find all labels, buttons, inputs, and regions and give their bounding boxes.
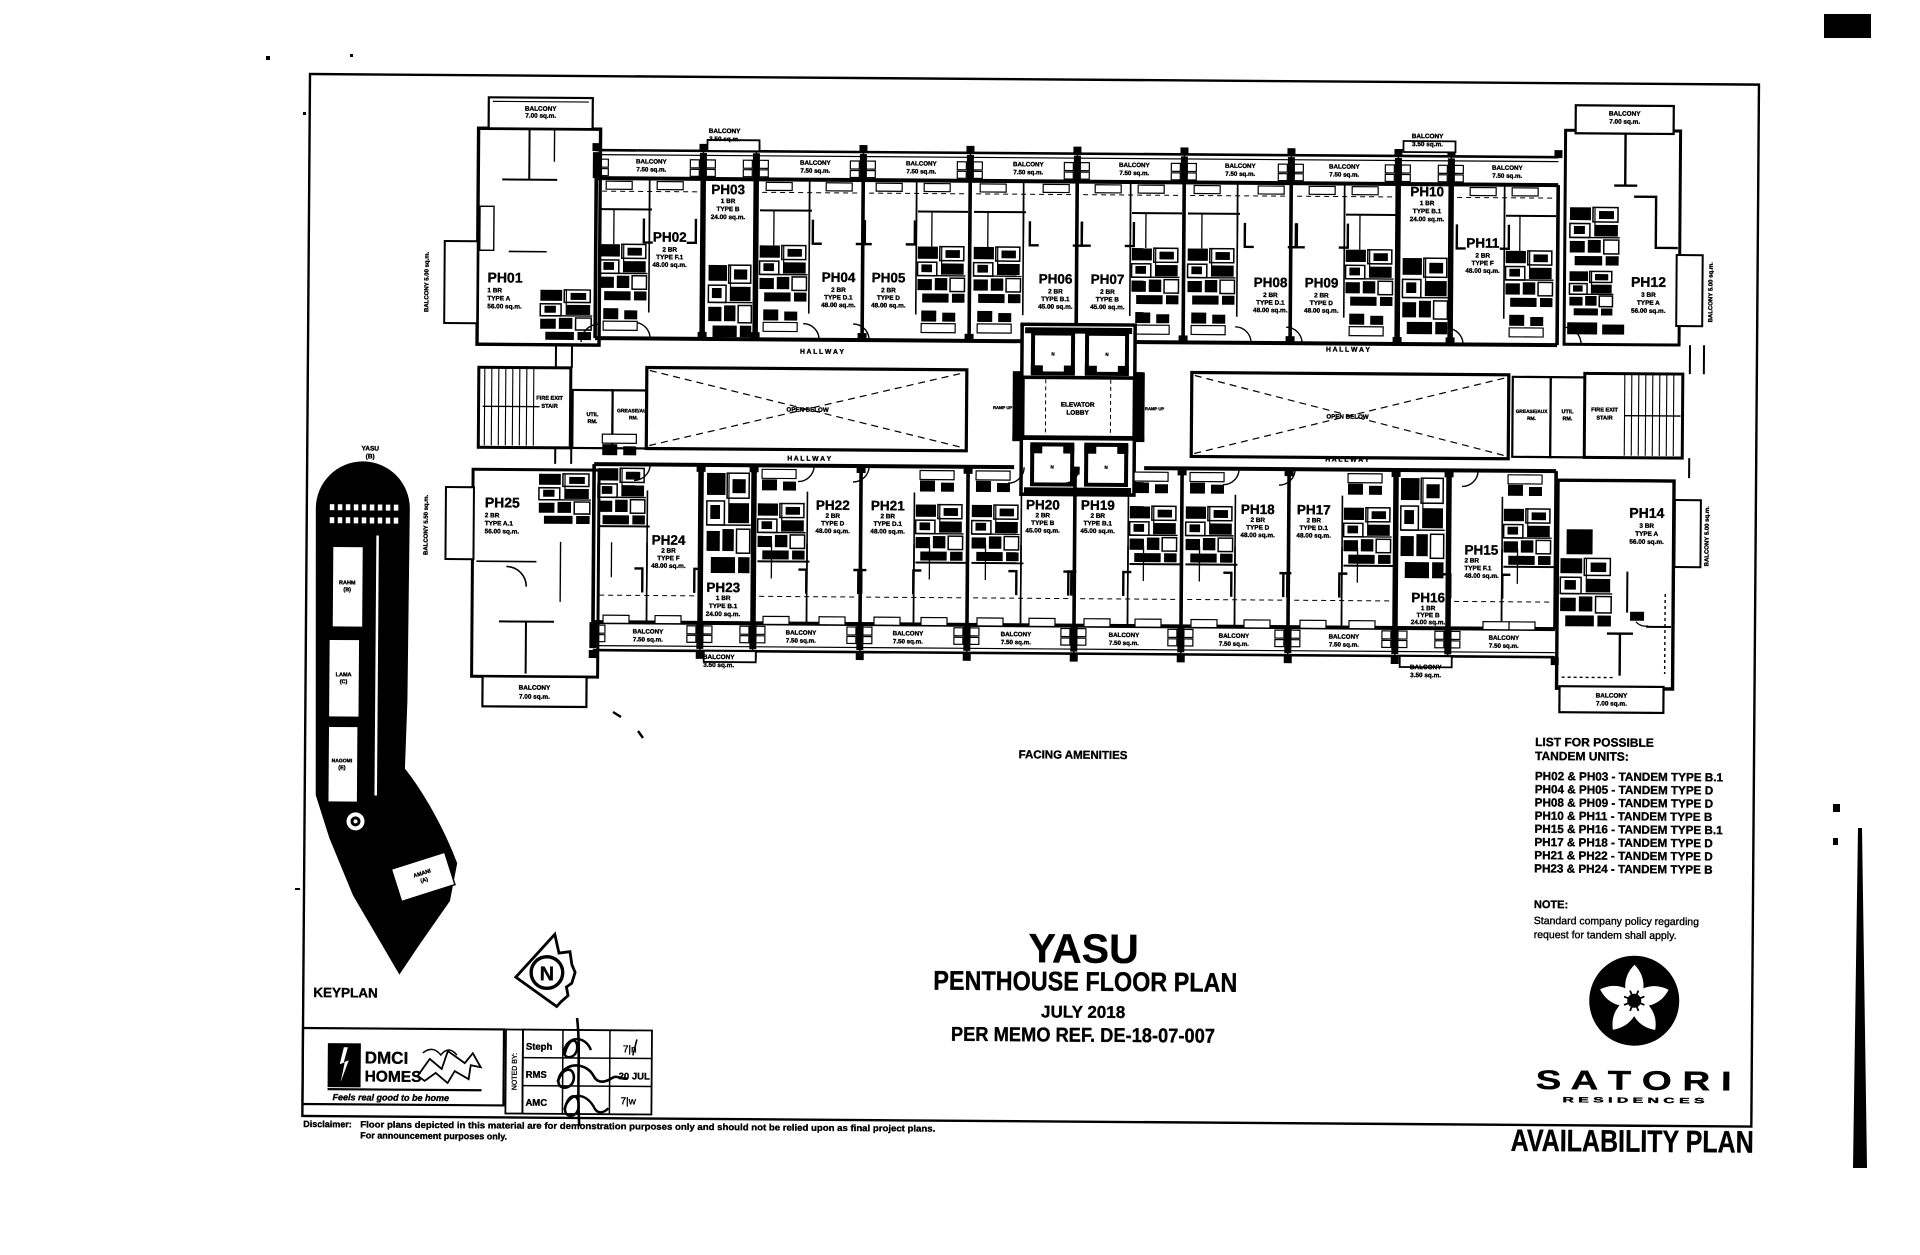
- svg-text:45.00 sq.m.: 45.00 sq.m.: [1080, 528, 1115, 535]
- svg-text:PH23 & PH24 - TANDEM TYPE B: PH23 & PH24 - TANDEM TYPE B: [1534, 862, 1712, 876]
- svg-text:3 BR: 3 BR: [1639, 523, 1654, 530]
- svg-text:TYPE A: TYPE A: [1635, 531, 1658, 538]
- svg-text:R E S I D E N C E S: R E S I D E N C E S: [1562, 1095, 1704, 1105]
- svg-text:TYPE F: TYPE F: [1471, 260, 1494, 267]
- svg-text:BALCONY 5.00 sq.m.: BALCONY 5.00 sq.m.: [424, 251, 430, 312]
- svg-text:7.50 sq.m.: 7.50 sq.m.: [1329, 641, 1359, 648]
- svg-text:7.00 sq.m.: 7.00 sq.m.: [519, 694, 550, 701]
- svg-text:BALCONY: BALCONY: [636, 158, 668, 165]
- svg-text:RAHM: RAHM: [339, 580, 356, 586]
- svg-text:PH02 & PH03 - TANDEM TYPE B.1: PH02 & PH03 - TANDEM TYPE B.1: [1535, 770, 1724, 784]
- svg-text:BALCONY: BALCONY: [1119, 162, 1151, 169]
- svg-text:1 BR: 1 BR: [1420, 200, 1435, 207]
- svg-text:PH04: PH04: [822, 270, 856, 285]
- svg-text:2 BR: 2 BR: [661, 548, 676, 555]
- svg-text:PH15 & PH16 - TANDEM TYPE B.1: PH15 & PH16 - TANDEM TYPE B.1: [1534, 823, 1723, 837]
- svg-text:PH03: PH03: [711, 182, 745, 197]
- svg-text:BALCONY: BALCONY: [703, 654, 735, 661]
- svg-text:7.50 sq.m.: 7.50 sq.m.: [1013, 169, 1043, 176]
- svg-text:2 BR: 2 BR: [1475, 253, 1490, 260]
- svg-text:PH04 & PH05 - TANDEM TYPE D: PH04 & PH05 - TANDEM TYPE D: [1535, 783, 1713, 797]
- svg-text:2 BR: 2 BR: [1100, 289, 1115, 296]
- svg-text:BALCONY: BALCONY: [1596, 692, 1628, 699]
- svg-text:OPEN BELOW: OPEN BELOW: [786, 407, 828, 414]
- svg-text:(C): (C): [340, 679, 348, 685]
- svg-text:PH17 & PH18 - TANDEM TYPE D: PH17 & PH18 - TANDEM TYPE D: [1534, 836, 1712, 850]
- svg-text:Steph: Steph: [526, 1042, 553, 1053]
- svg-text:7.50 sq.m.: 7.50 sq.m.: [636, 166, 666, 173]
- svg-text:BALCONY: BALCONY: [1109, 632, 1141, 639]
- svg-text:OPEN BELOW: OPEN BELOW: [1326, 413, 1368, 420]
- svg-text:2 BR: 2 BR: [1035, 512, 1050, 519]
- svg-text:TYPE F: TYPE F: [657, 555, 680, 562]
- svg-text:RM.: RM.: [1563, 416, 1573, 422]
- svg-text:PENTHOUSE FLOOR PLAN: PENTHOUSE FLOOR PLAN: [933, 966, 1237, 998]
- svg-text:7.00 sq.m.: 7.00 sq.m.: [1609, 119, 1640, 126]
- svg-text:YASU: YASU: [361, 445, 379, 452]
- svg-text:56.00 sq.m.: 56.00 sq.m.: [1631, 308, 1666, 315]
- svg-text:7.50 sq.m.: 7.50 sq.m.: [800, 168, 830, 175]
- svg-text:24.00 sq.m.: 24.00 sq.m.: [711, 214, 746, 221]
- svg-text:AMC: AMC: [525, 1098, 547, 1109]
- svg-text:N: N: [1105, 352, 1108, 357]
- svg-text:PH22: PH22: [816, 498, 850, 513]
- svg-text:RM.: RM.: [629, 415, 639, 421]
- svg-text:7.50 sq.m.: 7.50 sq.m.: [893, 638, 923, 645]
- svg-text:BALCONY 5.00 sq.m.: BALCONY 5.00 sq.m.: [1704, 506, 1710, 567]
- svg-text:BALCONY: BALCONY: [1013, 161, 1045, 168]
- svg-text:PH24: PH24: [652, 533, 686, 548]
- svg-text:BALCONY: BALCONY: [1489, 635, 1521, 642]
- svg-text:PH17: PH17: [1297, 502, 1331, 517]
- svg-text:TYPE B.1: TYPE B.1: [709, 603, 738, 610]
- svg-text:BALCONY: BALCONY: [709, 128, 741, 135]
- svg-text:PH14: PH14: [1629, 505, 1664, 521]
- svg-text:7.00 sq.m.: 7.00 sq.m.: [525, 113, 556, 120]
- svg-text:PH15: PH15: [1464, 542, 1498, 557]
- svg-text:request for tandem shall apply: request for tandem shall apply.: [1534, 929, 1677, 942]
- svg-text:2 BR: 2 BR: [1464, 557, 1479, 564]
- svg-text:RAMP UP: RAMP UP: [1145, 406, 1164, 411]
- svg-text:LOBBY: LOBBY: [1066, 410, 1089, 417]
- svg-text:7.50 sq.m.: 7.50 sq.m.: [1109, 640, 1139, 647]
- svg-text:3.50 sq.m.: 3.50 sq.m.: [709, 136, 740, 143]
- svg-text:BALCONY: BALCONY: [1609, 111, 1641, 118]
- svg-text:RM.: RM.: [587, 419, 597, 425]
- svg-text:48.00 sq.m.: 48.00 sq.m.: [1240, 532, 1275, 539]
- svg-text:45.00 sq.m.: 45.00 sq.m.: [1090, 304, 1125, 311]
- svg-text:TYPE A: TYPE A: [487, 295, 510, 302]
- svg-text:3 BR: 3 BR: [1641, 292, 1656, 299]
- svg-text:48.00 sq.m.: 48.00 sq.m.: [1253, 307, 1288, 314]
- svg-text:LAMA: LAMA: [336, 672, 352, 678]
- svg-text:7.50 sq.m.: 7.50 sq.m.: [1001, 639, 1031, 646]
- svg-text:2 BR: 2 BR: [831, 287, 846, 294]
- svg-text:48.00 sq.m.: 48.00 sq.m.: [870, 528, 905, 535]
- svg-text:7.50 sq.m.: 7.50 sq.m.: [1119, 170, 1149, 177]
- svg-text:PH09: PH09: [1305, 275, 1339, 290]
- svg-text:45.00 sq.m.: 45.00 sq.m.: [1025, 527, 1060, 534]
- svg-text:BALCONY: BALCONY: [800, 160, 832, 167]
- svg-text:PH25: PH25: [485, 494, 520, 510]
- svg-text:STAIR: STAIR: [1596, 415, 1612, 421]
- svg-text:2 BR: 2 BR: [1048, 288, 1063, 295]
- svg-text:BALCONY: BALCONY: [906, 160, 938, 167]
- svg-text:48.00 sq.m.: 48.00 sq.m.: [1304, 307, 1339, 314]
- svg-text:7.50 sq.m.: 7.50 sq.m.: [633, 636, 663, 643]
- svg-text:TYPE D.1: TYPE D.1: [824, 294, 853, 301]
- svg-text:TYPE A.1: TYPE A.1: [485, 520, 514, 527]
- svg-text:2 BR: 2 BR: [881, 287, 896, 294]
- svg-text:BALCONY 5.50 sq.m.: BALCONY 5.50 sq.m.: [423, 494, 429, 555]
- svg-text:56.00 sq.m.: 56.00 sq.m.: [1629, 539, 1664, 546]
- svg-text:7|w: 7|w: [620, 1096, 636, 1107]
- svg-text:NOTED BY:: NOTED BY:: [512, 1053, 519, 1090]
- svg-text:PH21: PH21: [871, 498, 905, 513]
- svg-text:BALCONY: BALCONY: [893, 630, 925, 637]
- svg-text:56.00 sq.m.: 56.00 sq.m.: [487, 303, 522, 310]
- svg-text:NOTE:: NOTE:: [1534, 899, 1568, 911]
- svg-text:KEYPLAN: KEYPLAN: [313, 985, 378, 1000]
- svg-text:BALCONY: BALCONY: [786, 630, 818, 637]
- svg-text:Disclaimer:: Disclaimer:: [303, 1119, 352, 1129]
- svg-text:STAIR: STAIR: [541, 404, 557, 410]
- svg-text:TYPE D.1: TYPE D.1: [873, 521, 902, 528]
- svg-text:PH12: PH12: [1631, 274, 1666, 290]
- svg-text:BALCONY: BALCONY: [1329, 633, 1361, 640]
- svg-text:FIRE EXIT: FIRE EXIT: [536, 396, 563, 402]
- svg-text:TANDEM UNITS:: TANDEM UNITS:: [1535, 749, 1629, 764]
- svg-text:PH08 & PH09 - TANDEM TYPE D: PH08 & PH09 - TANDEM TYPE D: [1535, 796, 1713, 810]
- svg-text:7.00 sq.m.: 7.00 sq.m.: [1596, 700, 1627, 707]
- svg-text:PH18: PH18: [1241, 502, 1275, 517]
- svg-text:48.00 sq.m.: 48.00 sq.m.: [651, 563, 686, 570]
- svg-text:2 BR: 2 BR: [485, 512, 500, 519]
- svg-text:TYPE D.1: TYPE D.1: [1256, 300, 1285, 307]
- svg-text:PH21 & PH22 - TANDEM TYPE D: PH21 & PH22 - TANDEM TYPE D: [1534, 849, 1712, 863]
- svg-text:TYPE D: TYPE D: [821, 520, 845, 527]
- svg-text:BALCONY: BALCONY: [1412, 133, 1444, 140]
- svg-text:YASU: YASU: [1028, 925, 1138, 972]
- svg-text:BALCONY: BALCONY: [633, 628, 665, 635]
- svg-text:JULY 2018: JULY 2018: [1041, 1002, 1125, 1022]
- svg-text:ELEVATOR: ELEVATOR: [1061, 402, 1095, 409]
- svg-text:TYPE B: TYPE B: [1031, 520, 1055, 527]
- svg-text:TYPE B.1: TYPE B.1: [1083, 520, 1112, 527]
- svg-text:2 BR: 2 BR: [662, 247, 677, 254]
- svg-text:7.50 sq.m.: 7.50 sq.m.: [1489, 643, 1519, 650]
- svg-text:RAMP UP: RAMP UP: [993, 405, 1012, 410]
- svg-text:For announcement purposes only: For announcement purposes only.: [360, 1130, 507, 1141]
- svg-text:N: N: [540, 963, 555, 985]
- svg-text:TYPE D: TYPE D: [877, 295, 901, 302]
- svg-text:48.00 sq.m.: 48.00 sq.m.: [1464, 573, 1499, 580]
- svg-text:48.00 sq.m.: 48.00 sq.m.: [1465, 268, 1500, 275]
- svg-text:7.50 sq.m.: 7.50 sq.m.: [1225, 171, 1255, 178]
- svg-text:FIRE EXIT: FIRE EXIT: [1591, 407, 1618, 413]
- svg-text:2 BR: 2 BR: [825, 513, 840, 520]
- svg-text:(E): (E): [338, 765, 346, 771]
- svg-text:RM.: RM.: [1527, 416, 1536, 422]
- svg-text:7.50 sq.m.: 7.50 sq.m.: [906, 168, 936, 175]
- svg-text:48.00 sq.m.: 48.00 sq.m.: [1296, 532, 1331, 539]
- svg-text:TYPE A: TYPE A: [1637, 300, 1660, 307]
- svg-text:RMS: RMS: [526, 1070, 547, 1081]
- svg-text:BALCONY: BALCONY: [1410, 664, 1442, 671]
- svg-text:BALCONY: BALCONY: [1329, 163, 1361, 170]
- svg-text:45.00 sq.m.: 45.00 sq.m.: [1038, 304, 1073, 311]
- svg-text:1 BR: 1 BR: [716, 595, 731, 602]
- svg-text:(B): (B): [366, 453, 375, 460]
- svg-text:N: N: [1104, 465, 1107, 470]
- svg-text:2 BR: 2 BR: [1090, 513, 1105, 520]
- svg-text:PH16: PH16: [1411, 590, 1445, 605]
- svg-text:N: N: [1051, 351, 1054, 356]
- svg-text:BALCONY: BALCONY: [1219, 633, 1251, 640]
- svg-text:BALCONY: BALCONY: [519, 685, 551, 692]
- svg-text:UTIL: UTIL: [586, 412, 599, 418]
- svg-text:H A L L W A Y: H A L L W A Y: [787, 456, 831, 463]
- svg-text:1 BR: 1 BR: [721, 198, 736, 205]
- svg-text:PH08: PH08: [1254, 275, 1288, 290]
- svg-text:BALCONY: BALCONY: [1492, 165, 1524, 172]
- svg-text:2 BR: 2 BR: [1314, 292, 1329, 299]
- svg-text:TYPE B.1: TYPE B.1: [1041, 296, 1070, 303]
- svg-text:7.50 sq.m.: 7.50 sq.m.: [786, 638, 816, 645]
- svg-text:48.00 sq.m.: 48.00 sq.m.: [815, 528, 850, 535]
- svg-text:TYPE D: TYPE D: [1246, 524, 1270, 531]
- svg-text:PH10 & PH11 - TANDEM TYPE B: PH10 & PH11 - TANDEM TYPE B: [1535, 810, 1713, 824]
- svg-text:TYPE F.1: TYPE F.1: [1464, 565, 1491, 572]
- svg-text:BALCONY: BALCONY: [1001, 631, 1033, 638]
- svg-text:Standard company policy regard: Standard company policy regarding: [1534, 915, 1699, 928]
- svg-text:DMCI: DMCI: [365, 1048, 409, 1067]
- svg-text:BALCONY 5.00 sq.m.: BALCONY 5.00 sq.m.: [1708, 262, 1714, 323]
- svg-text:24.00 sq.m.: 24.00 sq.m.: [1410, 216, 1445, 223]
- svg-text:PH06: PH06: [1039, 271, 1073, 286]
- svg-text:3.50 sq.m.: 3.50 sq.m.: [1410, 672, 1441, 679]
- svg-text:1 BR: 1 BR: [487, 287, 502, 294]
- svg-text:48.00 sq.m.: 48.00 sq.m.: [821, 302, 856, 309]
- svg-text:PH07: PH07: [1091, 272, 1125, 287]
- svg-text:GREASE/AUX: GREASE/AUX: [1516, 409, 1549, 415]
- svg-text:BALCONY: BALCONY: [1225, 163, 1257, 170]
- svg-text:24.00 sq.m.: 24.00 sq.m.: [1411, 619, 1446, 626]
- svg-text:2 BR: 2 BR: [1250, 517, 1265, 524]
- svg-text:TYPE B: TYPE B: [1096, 296, 1120, 303]
- svg-text:PH19: PH19: [1081, 498, 1115, 513]
- svg-text:2 BR: 2 BR: [1263, 292, 1278, 299]
- svg-text:7.50 sq.m.: 7.50 sq.m.: [1492, 173, 1522, 180]
- svg-text:S A T O R I: S A T O R I: [1536, 1065, 1732, 1096]
- svg-text:(B): (B): [343, 587, 351, 593]
- svg-text:AVAILABILITY PLAN: AVAILABILITY PLAN: [1511, 1123, 1754, 1160]
- svg-text:PH05: PH05: [872, 270, 906, 285]
- svg-text:N: N: [1050, 464, 1053, 469]
- svg-text:H A L L W A Y: H A L L W A Y: [800, 349, 844, 356]
- svg-text:H A L L W A Y: H A L L W A Y: [1326, 346, 1370, 353]
- svg-text:LIST FOR POSSIBLE: LIST FOR POSSIBLE: [1535, 735, 1654, 750]
- svg-text:TYPE F.1: TYPE F.1: [656, 254, 683, 261]
- svg-text:Feels real good to be home: Feels real good to be home: [332, 1092, 449, 1103]
- svg-text:TYPE D: TYPE D: [1310, 300, 1334, 307]
- svg-text:PH10: PH10: [1410, 184, 1444, 199]
- svg-text:48.00 sq.m.: 48.00 sq.m.: [652, 262, 687, 269]
- svg-text:FACING AMENITIES: FACING AMENITIES: [1019, 749, 1128, 762]
- svg-text:PH01: PH01: [487, 269, 522, 285]
- svg-text:PH11: PH11: [1466, 235, 1500, 250]
- svg-text:UTIL: UTIL: [1562, 409, 1575, 415]
- svg-text:2 BR: 2 BR: [880, 513, 895, 520]
- svg-text:HOMES: HOMES: [365, 1068, 422, 1085]
- svg-text:2 BR: 2 BR: [1306, 517, 1321, 524]
- svg-text:PH23: PH23: [706, 580, 740, 595]
- svg-text:7.50 sq.m.: 7.50 sq.m.: [1219, 641, 1249, 648]
- svg-text:20 JUL: 20 JUL: [619, 1071, 650, 1082]
- svg-text:TYPE B.1: TYPE B.1: [1413, 208, 1442, 215]
- svg-text:TYPE D.1: TYPE D.1: [1299, 525, 1328, 532]
- svg-text:3.50 sq.m.: 3.50 sq.m.: [703, 662, 734, 669]
- svg-text:TYPE B: TYPE B: [716, 206, 740, 213]
- svg-text:24.00 sq.m.: 24.00 sq.m.: [706, 611, 741, 618]
- svg-text:56.00 sq.m.: 56.00 sq.m.: [485, 528, 520, 535]
- svg-text:3.50 sq.m.: 3.50 sq.m.: [1412, 141, 1443, 148]
- svg-text:PH02: PH02: [653, 230, 687, 245]
- svg-text:PER MEMO REF. DE-18-07-007: PER MEMO REF. DE-18-07-007: [951, 1024, 1215, 1048]
- svg-text:NAGOMI: NAGOMI: [332, 758, 353, 764]
- svg-text:48.00 sq.m.: 48.00 sq.m.: [871, 302, 906, 309]
- svg-text:PH20: PH20: [1026, 497, 1060, 512]
- svg-text:7.50 sq.m.: 7.50 sq.m.: [1329, 171, 1359, 178]
